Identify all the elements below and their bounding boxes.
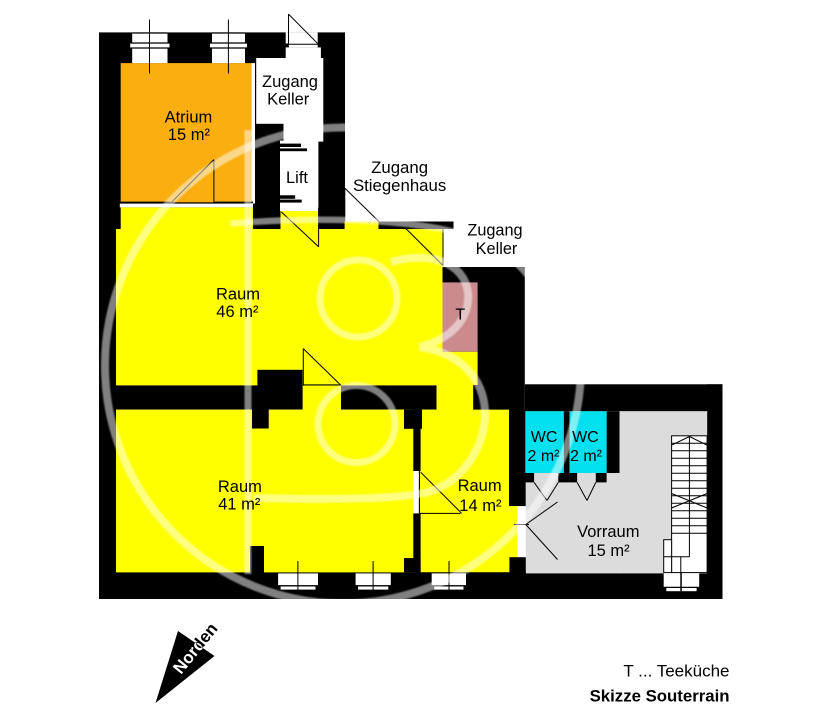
svg-text:Keller: Keller: [267, 90, 310, 108]
svg-text:2 m²: 2 m²: [570, 448, 603, 465]
svg-text:Stiegenhaus: Stiegenhaus: [353, 176, 446, 195]
svg-text:WC: WC: [531, 429, 558, 446]
svg-text:Zugang: Zugang: [371, 158, 428, 177]
svg-text:Lift: Lift: [286, 169, 308, 187]
svg-text:T: T: [455, 306, 465, 323]
svg-text:14 m²: 14 m²: [459, 497, 502, 515]
svg-text:46 m²: 46 m²: [216, 303, 259, 321]
svg-text:Atrium: Atrium: [165, 109, 213, 127]
svg-text:Vorraum: Vorraum: [577, 523, 639, 541]
svg-text:15 m²: 15 m²: [588, 542, 631, 560]
svg-text:Skizze Souterrain: Skizze Souterrain: [590, 687, 730, 706]
svg-text:T ... Teeküche: T ... Teeküche: [623, 661, 729, 680]
svg-text:Zugang: Zugang: [262, 73, 318, 91]
svg-text:Keller: Keller: [476, 240, 518, 258]
svg-text:Raum: Raum: [218, 478, 262, 496]
svg-text:2 m²: 2 m²: [528, 448, 561, 465]
svg-text:Raum: Raum: [458, 477, 502, 495]
svg-text:Zugang: Zugang: [467, 222, 522, 240]
svg-text:41 m²: 41 m²: [218, 496, 261, 514]
svg-text:15 m²: 15 m²: [168, 126, 211, 144]
svg-text:WC: WC: [572, 429, 599, 446]
svg-text:Raum: Raum: [216, 285, 260, 303]
